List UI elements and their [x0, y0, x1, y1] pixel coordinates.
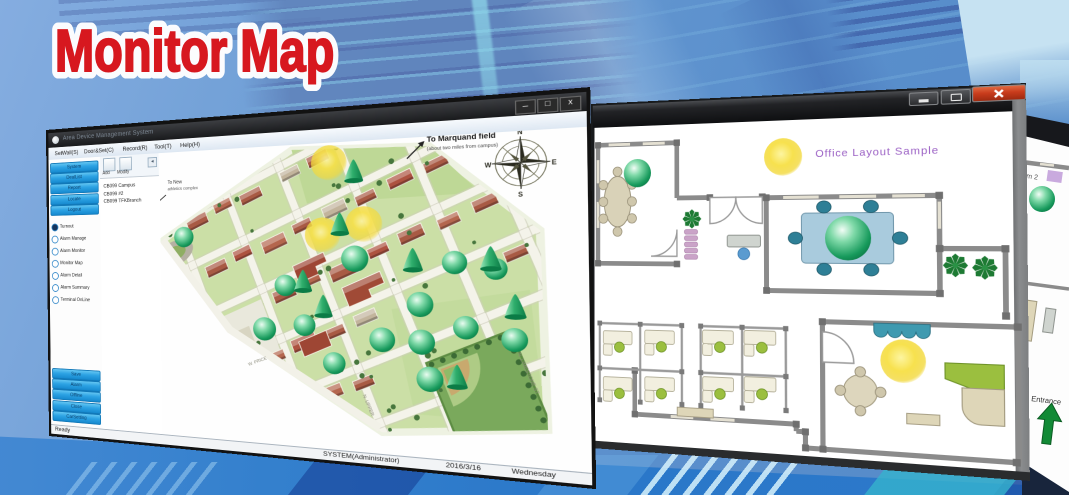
svg-text:To New: To New [168, 179, 183, 185]
svg-text:W: W [485, 162, 493, 170]
svg-text:Office Layout Sample: Office Layout Sample [815, 143, 939, 159]
svg-text:S: S [518, 191, 524, 199]
svg-text:W. PRICE: W. PRICE [248, 356, 269, 367]
svg-text:athletics complex: athletics complex [168, 186, 199, 192]
svg-text:E: E [552, 159, 558, 168]
svg-text:Monitor Map: Monitor Map [55, 19, 334, 84]
